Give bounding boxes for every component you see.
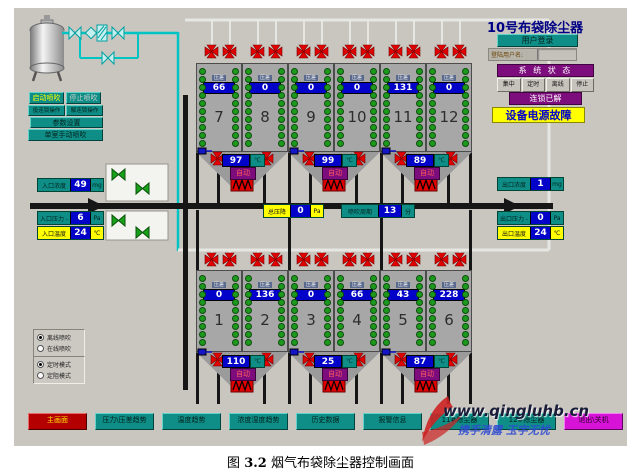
mode-stop[interactable]: 停止: [571, 78, 595, 92]
cycle-mode-group: 定时模式 定阻模式: [33, 356, 85, 384]
dp-label: 压差: [396, 75, 410, 81]
chamber-dp-value: 66: [203, 82, 235, 94]
chamber-number: 2: [243, 311, 287, 329]
chamber-dp-value: 228: [433, 289, 465, 301]
chamber-number: 7: [197, 108, 241, 126]
chamber-dp-value: 0: [295, 82, 327, 94]
hopper-temp: 25℃: [314, 355, 357, 368]
blow-cycle: 喷吹周期13分: [341, 204, 415, 218]
hopper-auto-mode[interactable]: 自动: [230, 167, 256, 180]
dp-label: 压差: [212, 282, 226, 288]
outlet-pressure: 出口压力 -0Pa: [497, 211, 564, 225]
radio-timed-mode[interactable]: 定时模式: [34, 359, 84, 370]
username-label: 登陆用户名:: [489, 49, 537, 60]
chamber: 压差 43 5: [380, 270, 426, 352]
power-fault-alarm: 设备电源故障: [492, 107, 585, 123]
nav-pressure-trend[interactable]: 压力\压差趋势: [95, 413, 154, 430]
chamber-number: 6: [427, 311, 471, 329]
nav-concentration-humidity-trend[interactable]: 浓度湿度趋势: [229, 413, 288, 430]
nav-alarm-info[interactable]: 报警信息: [363, 413, 422, 430]
chamber-number: 10: [335, 108, 379, 126]
hopper-temp: 97℃: [222, 154, 265, 167]
chamber-dp-value: 136: [249, 289, 281, 301]
dp-label: 压差: [304, 75, 318, 81]
radio-icon: [37, 345, 44, 352]
hopper-temp: 89℃: [406, 154, 449, 167]
hopper-temp: 87℃: [406, 355, 449, 368]
dp-label: 压差: [350, 75, 364, 81]
outlet-temperature: 出口温度24℃: [497, 226, 564, 240]
radio-online-blow[interactable]: 在线喷吹: [34, 343, 84, 354]
dp-label: 压差: [350, 282, 364, 288]
dp-label: 压差: [258, 282, 272, 288]
chamber: 压差 0 3: [288, 270, 334, 352]
release-interlock-button[interactable]: 解连锁操作: [66, 105, 103, 116]
figure-caption: 图 3.2 烟气布袋除尘器控制画面: [0, 452, 641, 471]
username-field[interactable]: [537, 49, 576, 60]
watermark-url: www.qingluhb.cn: [443, 402, 629, 420]
chamber-number: 12: [427, 108, 471, 126]
chamber-number: 5: [381, 311, 425, 329]
chamber-dp-value: 43: [387, 289, 419, 301]
radio-icon: [37, 334, 44, 341]
radio-offline-blow[interactable]: 离线喷吹: [34, 332, 84, 343]
hopper-temp: 99℃: [314, 154, 357, 167]
hopper-auto-mode[interactable]: 自动: [414, 167, 440, 180]
chamber: 压差 0 1: [196, 270, 242, 352]
chamber: 压差 0 8: [242, 63, 288, 152]
chamber-dp-value: 0: [203, 289, 235, 301]
system-status-header: 系 统 状 态: [497, 64, 594, 77]
nav-history-data[interactable]: 历史数据: [296, 413, 355, 430]
dp-label: 压差: [304, 282, 318, 288]
stop-blow-button[interactable]: 停止喷吹: [66, 92, 101, 104]
chamber: 压差 136 2: [242, 270, 288, 352]
hopper-auto-mode[interactable]: 自动: [230, 368, 256, 381]
chamber: 压差 0 12: [426, 63, 472, 152]
mode-timed[interactable]: 定时: [522, 78, 546, 92]
chamber: 压差 228 6: [426, 270, 472, 352]
radio-icon: [37, 361, 44, 368]
chamber-number: 3: [289, 311, 333, 329]
dp-label: 压差: [442, 282, 456, 288]
nav-main-screen[interactable]: 主画面: [28, 413, 87, 430]
engage-interlock-button[interactable]: 投连锁操作: [28, 105, 65, 116]
dp-label: 压差: [396, 282, 410, 288]
radio-icon: [37, 372, 44, 379]
outlet-concentration: 出口浓度1mg: [497, 177, 564, 191]
single-manual-blow-button[interactable]: 单室手动喷吹: [28, 129, 103, 141]
hmi-screenshot-page: 压差 66 7 压差 0 8 压差 0 9 压差 0 10 压差 131 11 …: [0, 0, 641, 475]
chamber-dp-value: 0: [341, 82, 373, 94]
dp-label: 压差: [258, 75, 272, 81]
chamber-dp-value: 0: [295, 289, 327, 301]
chamber-number: 4: [335, 311, 379, 329]
chamber-dp-value: 0: [249, 82, 281, 94]
start-blow-button[interactable]: 启动喷吹: [29, 92, 64, 104]
param-settings-button[interactable]: 参数设置: [30, 117, 103, 128]
chamber-dp-value: 0: [433, 82, 465, 94]
watermark-slogan: 携手清露 玉宇无忧: [458, 422, 628, 438]
chamber-dp-value: 66: [341, 289, 373, 301]
username-row: 登陆用户名:: [488, 48, 577, 61]
inlet-pressure: 入口压力 -6Pa: [37, 211, 104, 225]
inlet-temperature: 入口温度24℃: [37, 226, 104, 240]
dp-label: 压差: [442, 75, 456, 81]
chamber-number: 9: [289, 108, 333, 126]
interlock-status-banner: 连锁已解: [509, 92, 582, 105]
mode-selector: 集中 定时 离线 停止: [497, 78, 594, 92]
radio-fixed-resistance-mode[interactable]: 定阻模式: [34, 370, 84, 381]
blow-mode-group: 离线喷吹 在线喷吹: [33, 329, 85, 357]
hopper-auto-mode[interactable]: 自动: [414, 368, 440, 381]
hopper-temp: 110℃: [222, 355, 265, 368]
total-pressure-drop: 总压降0Pa: [263, 204, 324, 218]
chamber-number: 11: [381, 108, 425, 126]
chamber-number: 1: [197, 311, 241, 329]
chamber: 压差 0 9: [288, 63, 334, 152]
chamber: 压差 0 10: [334, 63, 380, 152]
inlet-concentration: 入口浓度49mg: [37, 178, 104, 192]
dp-label: 压差: [212, 75, 226, 81]
chamber: 压差 131 11: [380, 63, 426, 152]
chamber-dp-value: 131: [387, 82, 419, 94]
chamber-number: 8: [243, 108, 287, 126]
mode-centralized[interactable]: 集中: [497, 78, 521, 92]
nav-temperature-trend[interactable]: 温度趋势: [162, 413, 221, 430]
chamber: 压差 66 4: [334, 270, 380, 352]
chamber: 压差 66 7: [196, 63, 242, 152]
user-login-button[interactable]: 用户登录: [497, 34, 578, 47]
hopper-auto-mode[interactable]: 自动: [322, 368, 348, 381]
hopper-auto-mode[interactable]: 自动: [322, 167, 348, 180]
mode-offline[interactable]: 离线: [546, 78, 570, 92]
